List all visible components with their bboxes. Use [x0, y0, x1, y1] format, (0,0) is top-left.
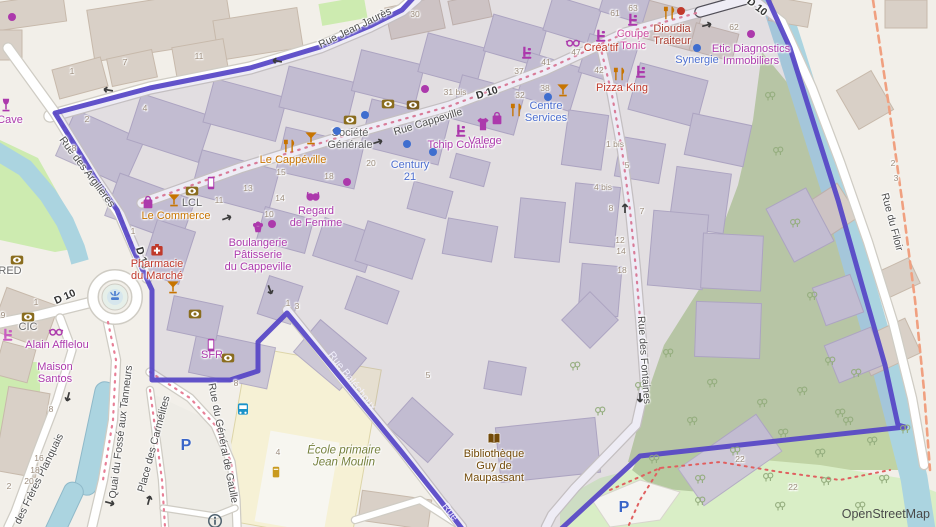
map-base-graphics — [0, 0, 936, 527]
map-canvas[interactable]: Rue Jean JaurèsRue CappevilleRue des Arg… — [0, 0, 936, 527]
attribution-link[interactable]: OpenStreetMap — [842, 507, 930, 521]
oneway-arrow-icon — [104, 499, 114, 506]
oneway-arrow-icon — [64, 391, 71, 401]
oneway-arrow-icon — [145, 495, 152, 505]
